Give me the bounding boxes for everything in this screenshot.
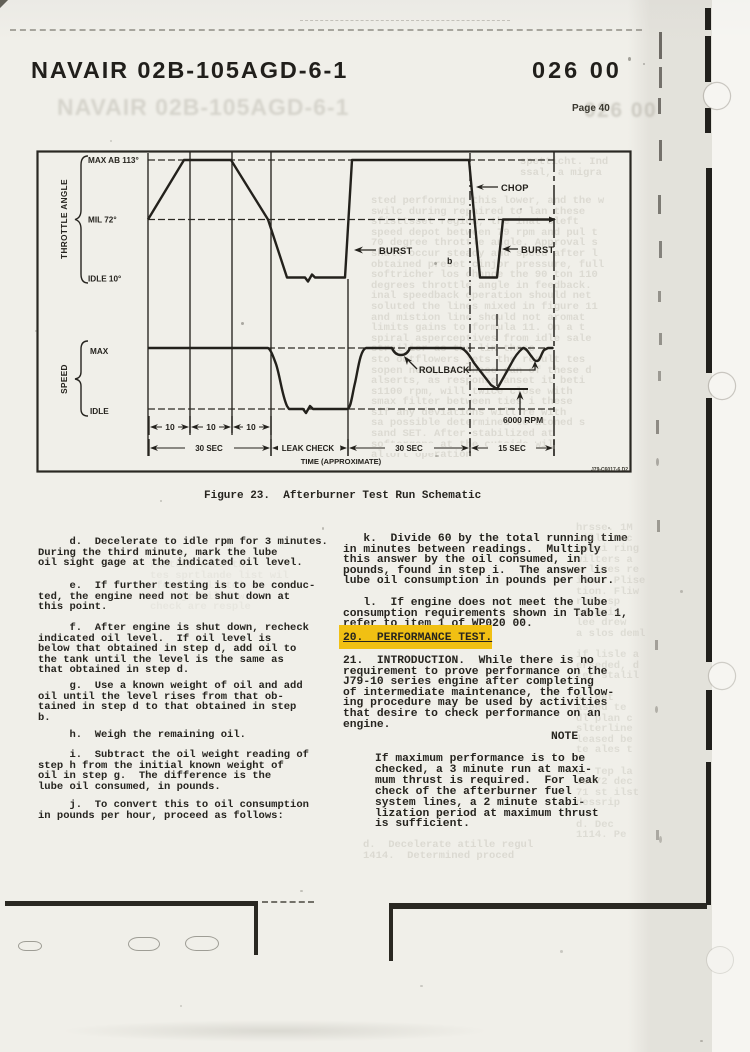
- svg-text:THROTTLE ANGLE: THROTTLE ANGLE: [60, 179, 69, 259]
- svg-text:TIME (APPROXIMATE): TIME (APPROXIMATE): [301, 457, 382, 466]
- svg-text:ROLLBACK: ROLLBACK: [419, 365, 470, 375]
- svg-text:IDLE 10°: IDLE 10°: [88, 275, 121, 284]
- svg-text:10: 10: [206, 422, 216, 432]
- svg-text:J79-C6017-6 D2: J79-C6017-6 D2: [591, 467, 628, 473]
- svg-text:LEAK CHECK: LEAK CHECK: [282, 444, 335, 453]
- svg-text:CHOP: CHOP: [501, 183, 529, 193]
- svg-text:BURST: BURST: [379, 246, 413, 256]
- svg-text:BURST: BURST: [521, 245, 555, 255]
- svg-text:IDLE: IDLE: [90, 407, 109, 416]
- svg-text:6000 RPM: 6000 RPM: [503, 415, 543, 425]
- svg-text:b: b: [447, 257, 452, 267]
- svg-text:15 SEC: 15 SEC: [498, 444, 526, 453]
- svg-text:MIL 72°: MIL 72°: [88, 216, 117, 225]
- svg-text:30 SEC: 30 SEC: [395, 444, 423, 453]
- svg-text:SPEED: SPEED: [60, 364, 69, 394]
- svg-text:30 SEC: 30 SEC: [195, 444, 223, 453]
- svg-text:MAX AB 113°: MAX AB 113°: [88, 156, 139, 165]
- svg-text:10: 10: [165, 422, 175, 432]
- svg-text:10: 10: [246, 422, 256, 432]
- svg-text:MAX: MAX: [90, 347, 109, 356]
